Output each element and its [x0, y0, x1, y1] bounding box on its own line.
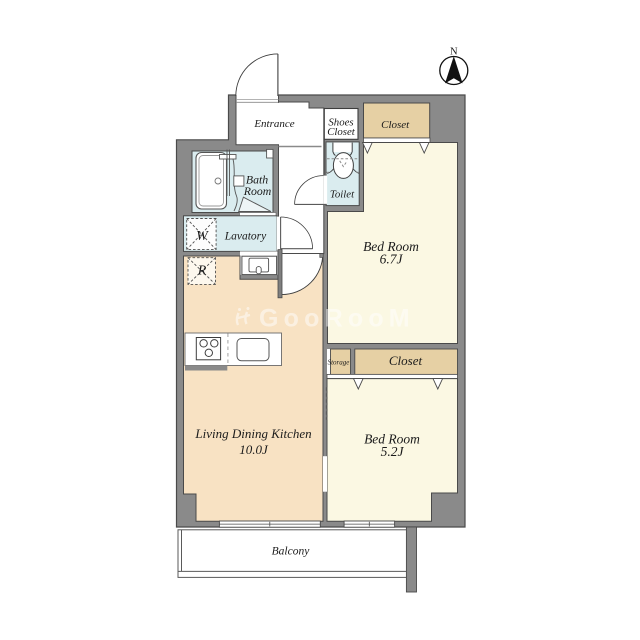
svg-text:Closet: Closet — [327, 126, 356, 138]
svg-text:Living Dining Kitchen: Living Dining Kitchen — [194, 426, 311, 441]
svg-text:Storage: Storage — [328, 358, 350, 366]
svg-text:W: W — [196, 229, 209, 244]
svg-text:N: N — [450, 47, 458, 58]
svg-text:Lavatory: Lavatory — [224, 231, 267, 243]
svg-text:Entrance: Entrance — [253, 118, 294, 130]
svg-text:GooRooM: GooRooM — [259, 305, 415, 333]
svg-text:Toilet: Toilet — [330, 188, 355, 200]
svg-text:5.2J: 5.2J — [381, 444, 405, 459]
svg-text:Closet: Closet — [389, 353, 423, 368]
svg-text:Closet: Closet — [381, 119, 410, 131]
svg-text:10.0J: 10.0J — [239, 442, 269, 457]
svg-text:6.7J: 6.7J — [380, 252, 404, 267]
svg-text:Room: Room — [243, 184, 272, 198]
svg-text:R: R — [197, 264, 207, 279]
svg-text:Balcony: Balcony — [272, 546, 311, 558]
